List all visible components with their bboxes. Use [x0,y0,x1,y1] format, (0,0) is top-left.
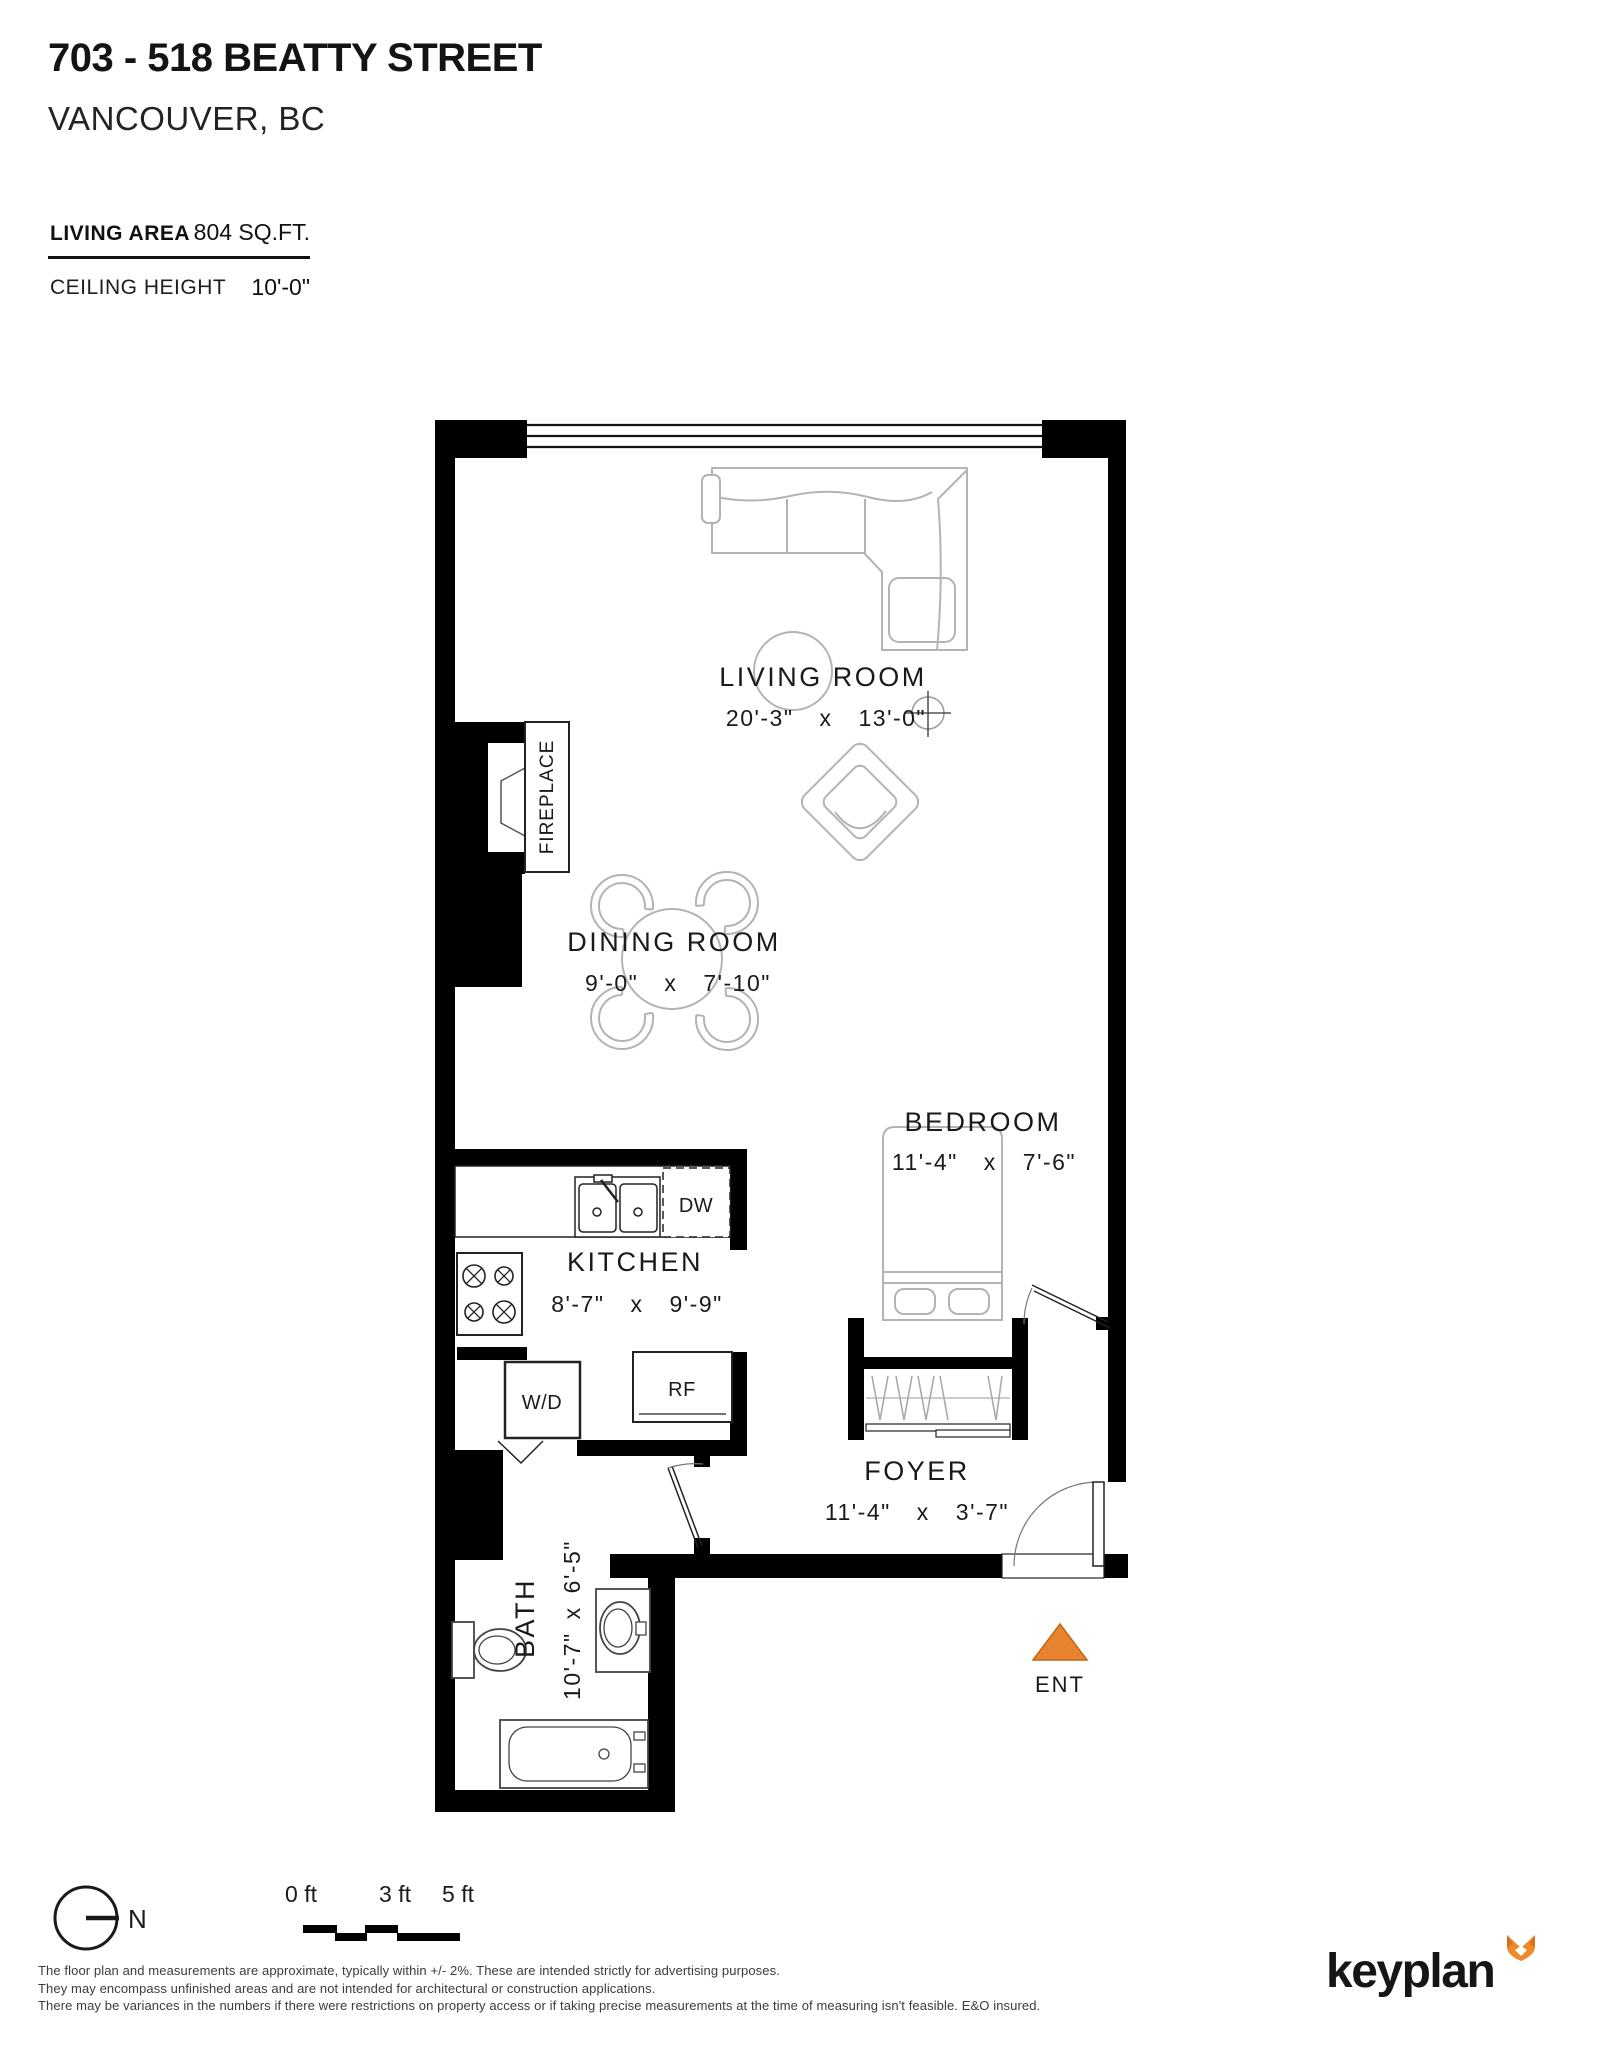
room-label-dining: DINING ROOM [567,927,781,957]
entry-door [1002,1482,1104,1578]
dining-chairs [591,872,758,1050]
fox-icon [1507,1935,1535,1961]
room-label-bath: BATH [510,1578,540,1658]
scale-bar: 0 ft 3 ft 5 ft [285,1881,475,1941]
dishwasher-label: DW [679,1195,713,1217]
disclaimer-line-1: The floor plan and measurements are appr… [38,1962,1040,1980]
stove [457,1253,522,1335]
room-dims-bedroom: 11'-4" x 7'-6" [892,1149,1076,1175]
sectional-sofa [702,468,967,650]
scale-label-0: 0 ft [285,1881,318,1907]
bathtub [500,1720,648,1788]
disclaimer-line-2: They may encompass unfinished areas and … [38,1980,1040,1998]
scale-bar-blocks [303,1925,460,1941]
disclaimer-line-3: There may be variances in the numbers if… [38,1997,1040,2015]
bifold-door [498,1441,543,1463]
washer-dryer-label: W/D [522,1392,562,1414]
bath-door [668,1464,703,1548]
ent-label: ENT [1035,1672,1085,1697]
washer-dryer: W/D [498,1362,580,1463]
room-label-living: LIVING ROOM [719,662,927,692]
closet-sliding-door [936,1430,1010,1437]
fireplace-label: FIREPLACE [537,740,558,855]
north-label: N [128,1904,147,1934]
room-dims-foyer: 11'-4" x 3'-7" [825,1499,1009,1525]
window-wall [527,425,1042,447]
room-dims-bath: 10'-7" x 6'-5" [559,1540,585,1700]
disclaimer: The floor plan and measurements are appr… [38,1962,1040,2015]
floor-plan-page: 703 - 518 BEATTY STREET VANCOUVER, BC LI… [0,0,1600,2071]
vanity-sink [596,1589,650,1672]
room-dims-dining: 9'-0" x 7'-10" [585,970,771,996]
logo-text: keyplan [1326,1944,1494,1999]
entry-arrow-icon [1033,1624,1087,1660]
floor-plan: FIREPLACE [0,0,1600,2071]
room-dims-living: 20'-3" x 13'-0" [726,705,926,731]
north-arrow-icon: N [55,1887,147,1949]
scale-label-3: 3 ft [379,1881,412,1907]
ent-marker: ENT [1033,1624,1087,1697]
kitchen-sink [575,1175,660,1237]
dishwasher: DW [663,1168,730,1237]
bedroom-door [1024,1285,1110,1328]
accent-chair [798,740,922,864]
scale-label-5: 5 ft [442,1881,475,1907]
closet [866,1376,1010,1437]
refrigerator: RF [633,1352,732,1422]
room-label-foyer: FOYER [864,1456,970,1486]
room-label-kitchen: KITCHEN [567,1247,703,1277]
room-label-bedroom: BEDROOM [904,1107,1061,1137]
fireplace: FIREPLACE [488,722,569,872]
room-dims-kitchen: 8'-7" x 9'-9" [551,1291,723,1317]
refrigerator-label: RF [668,1379,696,1401]
